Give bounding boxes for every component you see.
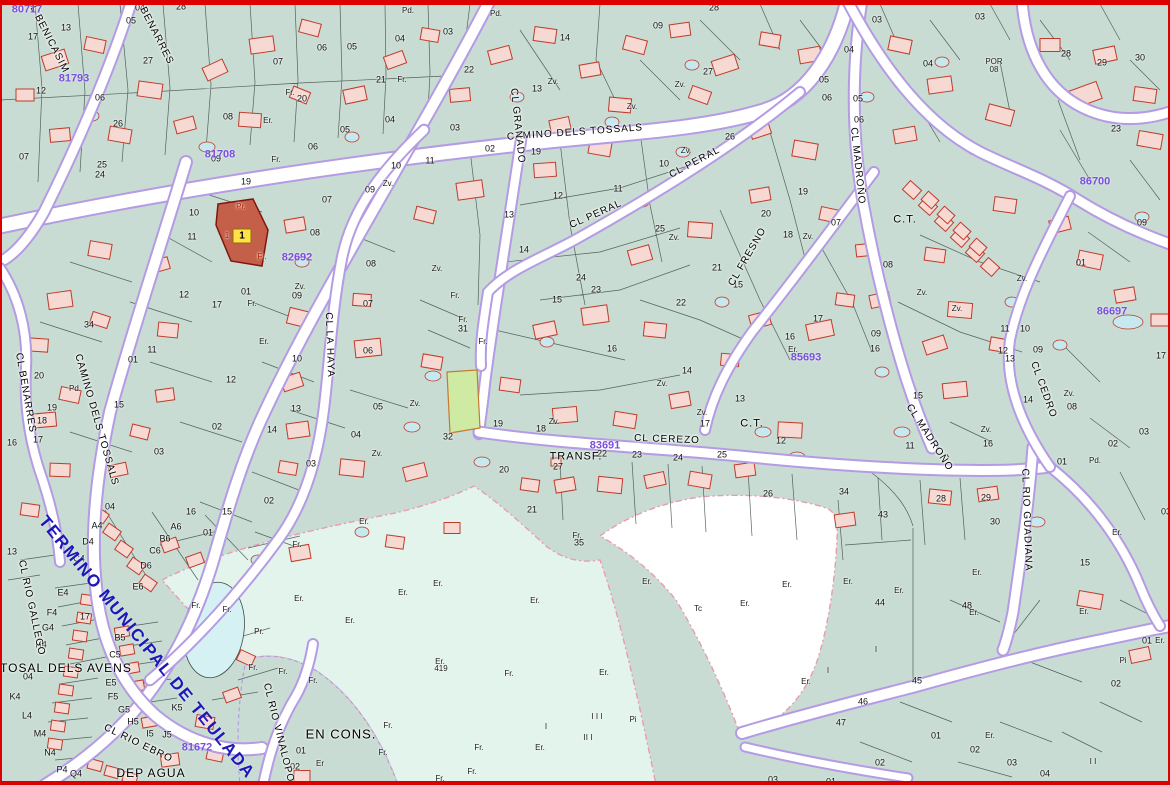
parcel-label: Pd. [1089, 457, 1101, 465]
map-frame-top [0, 0, 1170, 5]
parcel-label: 03 [306, 460, 316, 469]
parcel-label: 02 [875, 759, 885, 768]
parcel-label: 01 [931, 732, 941, 741]
parcel-label: 08 [990, 66, 999, 74]
parcel-label: 34 [84, 321, 94, 330]
parcel-label: 17 [1156, 352, 1166, 361]
parcel-label: 14 [682, 367, 692, 376]
parcel-label: 03 [443, 28, 453, 37]
parcel-label: 32 [443, 433, 453, 442]
parcel-label: Pr. [236, 203, 246, 211]
parcel-label: 11 [425, 157, 434, 166]
parcel-label: Fr. [278, 668, 287, 676]
parcel-label: Zv. [669, 234, 680, 242]
street-name-label: CL RIO GUADIANA [1019, 468, 1033, 571]
parcel-label: 02 [1111, 680, 1121, 689]
parcel-label: Er. [530, 597, 540, 605]
parcel-label: Zv. [697, 409, 708, 417]
parcel-label: M4 [34, 730, 47, 739]
parcel-label: Fr. [292, 541, 301, 549]
parcel-label: Er. [294, 595, 304, 603]
parcel-label: 01 [203, 529, 213, 538]
parcel-label: 24 [576, 274, 586, 283]
parcel-label: Er. [782, 581, 792, 589]
parcel-label: 08 [223, 113, 233, 122]
parcel-label: 09 [292, 292, 302, 301]
parcel-label: 19 [241, 178, 251, 187]
parcel-label: D6 [140, 562, 152, 571]
parcel-label: 43 [878, 511, 888, 520]
parcel-label: C5 [109, 651, 121, 660]
parcel-label: 23 [632, 451, 642, 460]
parcel-label: 12 [36, 87, 46, 96]
parcel-label: 06 [317, 44, 327, 53]
parcel-label: 01 [296, 747, 306, 756]
parcel-label: 08 [366, 260, 376, 269]
parcel-label: Er. [398, 589, 408, 597]
parcel-label: B5 [114, 634, 125, 643]
parcel-label: N4 [44, 749, 56, 758]
parcel-label: Pi [629, 716, 636, 724]
parcel-label: 06 [363, 347, 373, 356]
parcel-label: 01 [1076, 259, 1086, 268]
parcel-label: Zv. [627, 103, 638, 111]
parcel-label: L4 [22, 712, 32, 721]
parcel-label: 16 [785, 333, 795, 342]
parcel-label: 18 [783, 231, 793, 240]
parcel-label: 22 [676, 299, 686, 308]
parcel-label: 01 [1057, 458, 1067, 467]
parcel-label: 26 [725, 133, 735, 142]
parcel-label: 13 [291, 405, 301, 414]
parcel-label: Er. [535, 744, 545, 752]
parcel-label: 20 [34, 372, 44, 381]
parcel-label: 17 [28, 33, 38, 42]
parcel-label: 1 [225, 232, 229, 240]
parcel-label: 07 [19, 153, 29, 162]
parcel-label: Fr. [474, 744, 483, 752]
parcel-label: 13 [504, 211, 514, 220]
street-name-label: CL MADROÑO [904, 403, 955, 473]
parcel-label: 02 [212, 423, 222, 432]
parcel-label: 28 [1061, 50, 1071, 59]
area-label: EN CONS. [306, 728, 377, 741]
parcel-label: 35 [574, 539, 584, 548]
parcel-label: 09 [871, 330, 881, 339]
parcel-label: Fr. [191, 602, 200, 610]
parcel-label: Zv. [1064, 390, 1075, 398]
parcel-label: 03 [1007, 759, 1017, 768]
parcel-label: 03 [1139, 428, 1149, 437]
parcel-label: 20 [761, 210, 771, 219]
parcel-label: 02 [1108, 440, 1118, 449]
parcel-label: Zv. [372, 450, 383, 458]
street-name-label: CAMINO DELS TOSSALS [507, 123, 644, 142]
street-name-label: CL RIO GALLEGO [16, 559, 46, 656]
parcel-label: 24 [95, 171, 105, 180]
parcel-label: Fr. [450, 292, 459, 300]
parcel-label: 12 [553, 192, 563, 201]
parcel-label: 19 [531, 148, 541, 157]
parcel-label: 07 [831, 219, 841, 228]
parcel-label: 15 [1080, 559, 1090, 568]
parcel-label: 14 [519, 246, 529, 255]
parcel-label: 29 [1097, 59, 1107, 68]
parcel-label: 04 [105, 503, 115, 512]
parcel-label: 15 [114, 401, 124, 410]
parcel-label: Zv. [657, 380, 668, 388]
parcel-label: 11 [613, 185, 622, 194]
parcel-label: Er. [642, 578, 652, 586]
parcel-label: Er. [345, 617, 355, 625]
parcel-label: 18 [37, 417, 47, 426]
parcel-label: Er. [740, 600, 750, 608]
parcel-label: Er. [1079, 608, 1089, 616]
block-code-label: 86697 [1097, 307, 1128, 318]
parcel-label: 14 [560, 34, 570, 43]
parcel-label: 17 [80, 613, 90, 622]
street-name-label: CL PERAL [668, 145, 722, 180]
parcel-label: Er. [359, 518, 369, 526]
parcel-label: 20 [499, 466, 509, 475]
parcel-label: 03 [872, 16, 882, 25]
parcel-label: Er. [1112, 529, 1122, 537]
parcel-label: Er. [433, 580, 443, 588]
parcel-label: 06 [854, 116, 864, 125]
parcel-label: 09 [1033, 346, 1043, 355]
parcel-label: 12 [179, 291, 189, 300]
parcel-label: 11 [1000, 325, 1009, 334]
parcel-label: 21 [376, 76, 386, 85]
parcel-label: Fr. [467, 768, 476, 776]
parcel-label: F4 [47, 609, 58, 618]
parcel-label: 15 [552, 296, 562, 305]
block-code-label: 81672 [182, 743, 213, 754]
area-label: C.T. [740, 419, 764, 430]
parcel-label: Pd. [490, 10, 502, 18]
parcel-label: II I [584, 734, 593, 742]
area-label: C.T. [893, 215, 917, 226]
parcel-label: 17 [33, 436, 43, 445]
parcel-label: 07 [363, 300, 373, 309]
parcel-label: 07 [273, 58, 283, 67]
parcel-label: 16 [7, 439, 17, 448]
parcel-label: 08 [883, 261, 893, 270]
parcel-label: 10 [189, 209, 199, 218]
parcel-label: 05 [340, 126, 350, 135]
parcel-label: Fr. [383, 722, 392, 730]
parcel-label: 419 [434, 665, 447, 673]
parcel-label: 08 [310, 229, 320, 238]
area-label: DEP AGUA [116, 767, 185, 779]
parcel-label: 13 [1005, 355, 1015, 364]
parcel-label: 19 [47, 404, 57, 413]
parcel-label: Zv. [981, 426, 992, 434]
parcel-label: Q4 [70, 770, 82, 779]
street-name-label: CL PERAL [568, 199, 623, 231]
parcel-label: 01 [128, 356, 138, 365]
cadastral-map[interactable]: 1713040528120627082625240707060519Fr.20E… [0, 0, 1170, 785]
parcel-label: 05 [347, 43, 357, 52]
parcel-label: 02 [264, 497, 274, 506]
parcel-label: E6 [132, 583, 143, 592]
parcel-label: Zv. [803, 233, 814, 241]
parcel-label: 26 [763, 490, 773, 499]
parcel-label: 10 [1020, 325, 1030, 334]
parcel-label: E4 [57, 589, 68, 598]
street-name-label: CL GRANADO [508, 88, 526, 164]
parcel-label: 05 [373, 403, 383, 412]
parcel-label: Fr. [285, 89, 294, 97]
parcel-label: 11 [905, 442, 914, 451]
parcel-label: 04 [395, 35, 405, 44]
parcel-label: 05 [126, 17, 136, 26]
parcel-label: 23 [591, 286, 601, 295]
parcel-label: 17 [212, 301, 222, 310]
parcel-label: 11 [187, 233, 196, 242]
parcel-label: Fr. [248, 664, 257, 672]
parcel-label: 04 [923, 60, 933, 69]
parcel-label: 02 [485, 145, 495, 154]
parcel-label: P4 [56, 766, 67, 775]
parcel-label: 15 [222, 508, 232, 517]
parcel-label: 26 [113, 120, 123, 129]
parcel-label: 30 [1135, 54, 1145, 63]
area-label: TOSAL DELS AVENS [0, 662, 132, 674]
parcel-label: 30 [990, 518, 1000, 527]
parcel-label: 09 [1137, 219, 1147, 228]
labels-layer: 1713040528120627082625240707060519Fr.20E… [0, 0, 1170, 785]
parcel-label: I [545, 723, 547, 731]
parcel-label: 27 [703, 68, 713, 77]
parcel-label: 06 [95, 94, 105, 103]
parcel-label: 16 [870, 345, 880, 354]
parcel-label: 25 [97, 161, 107, 170]
parcel-label: J5 [162, 731, 172, 740]
parcel-label: 18 [536, 425, 546, 434]
parcel-label: 46 [858, 698, 868, 707]
parcel-label: 04 [385, 116, 395, 125]
parcel-label: Fr. [397, 76, 406, 84]
parcel-label: Fr. [247, 300, 256, 308]
parcel-label: 04 [351, 431, 361, 440]
area-label: TRANSF. [550, 452, 603, 463]
parcel-label: H5 [127, 718, 139, 727]
parcel-label: 09 [365, 186, 375, 195]
parcel-label: 21 [712, 264, 722, 273]
parcel-label: F5 [108, 693, 119, 702]
parcel-label: Er. [894, 587, 904, 595]
parcel-label: Fr. [257, 253, 266, 261]
parcel-label: 16 [186, 508, 196, 517]
street-name-label: CL FRESNO [727, 226, 769, 288]
parcel-label: 27 [143, 57, 153, 66]
parcel-label: 10 [391, 162, 401, 171]
parcel-label: 14 [267, 426, 277, 435]
parcel-label: 23 [1111, 125, 1121, 134]
street-name-label: CL RIO VINALOPO [261, 682, 295, 783]
parcel-label: Zv. [675, 81, 686, 89]
map-frame-bottom [0, 781, 1170, 785]
parcel-label: Er. [801, 678, 811, 686]
parcel-label: Er. [972, 569, 982, 577]
parcel-label: 12 [776, 437, 786, 446]
parcel-label: 13 [735, 395, 745, 404]
parcel-label: 31 [458, 325, 468, 334]
parcel-label: 04 [844, 46, 854, 55]
parcel-label: Pi [1119, 657, 1126, 665]
parcel-label: Fr. [478, 338, 487, 346]
parcel-label: I I I [591, 713, 602, 721]
parcel-label: Fr. [222, 606, 231, 614]
parcel-label: 19 [493, 420, 503, 429]
parcel-label: B6 [159, 535, 170, 544]
parcel-label: Er. [969, 609, 979, 617]
parcel-label: 11 [147, 346, 156, 355]
parcel-label: 25 [717, 451, 727, 460]
parcel-label: C6 [149, 547, 161, 556]
parcel-label: 20 [297, 95, 307, 104]
parcel-label: 21 [527, 506, 537, 515]
parcel-label: 28 [936, 495, 946, 504]
block-code-label: 81793 [59, 74, 90, 85]
parcel-label: Fr. [378, 749, 387, 757]
parcel-label: Zv. [917, 289, 928, 297]
parcel-label: 17 [813, 315, 823, 324]
parcel-label: G5 [118, 706, 130, 715]
parcel-label: 16 [607, 345, 617, 354]
parcel-label: Fr. [271, 156, 280, 164]
parcel-label: 22 [464, 66, 474, 75]
street-name-label: CAMINO DELS TOSSALS [72, 353, 119, 487]
parcel-label: Pd. [402, 7, 414, 15]
parcel-label: 44 [875, 599, 885, 608]
parcel-label: G4 [42, 624, 54, 633]
parcel-label: Er. [1155, 637, 1165, 645]
parcel-label: K4 [9, 693, 20, 702]
parcel-label: I I [1090, 758, 1097, 766]
parcel-label: 29 [981, 494, 991, 503]
parcel-label: 05 [819, 76, 829, 85]
parcel-label: 10 [659, 160, 669, 169]
parcel-label: 02 [970, 746, 980, 755]
parcel-label: 05 [853, 95, 863, 104]
street-name-label: CL CEREZO [634, 434, 700, 446]
parcel-label: 06 [308, 143, 318, 152]
block-code-label: 80717 [12, 5, 43, 16]
parcel-label: 03 [975, 13, 985, 22]
parcel-label: A6 [170, 523, 181, 532]
parcel-label: E5 [105, 679, 116, 688]
parcel-label: Zv. [432, 265, 443, 273]
parcel-label: Zv. [548, 78, 559, 86]
parcel-label: Zv. [952, 305, 963, 313]
street-name-label: CL MADROÑO [848, 127, 866, 205]
parcel-label: 06 [822, 94, 832, 103]
parcel-label: Er. [263, 117, 273, 125]
map-frame-left [0, 0, 2, 785]
parcel-label: Er. [985, 732, 995, 740]
parcel-label: Zv. [681, 147, 692, 155]
parcel-label: 07 [322, 196, 332, 205]
parcel-label: I [875, 646, 877, 654]
street-name-label: CL LA HAYA [323, 312, 335, 378]
parcel-label: Er. [599, 669, 609, 677]
parcel-label: Tc [694, 605, 702, 613]
parcel-label: 01 [1142, 637, 1152, 646]
parcel-label: 01 [241, 288, 251, 297]
parcel-label: 47 [836, 719, 846, 728]
parcel-label: 03 [450, 124, 460, 133]
parcel-label: 08 [1067, 403, 1077, 412]
street-name-label: CL CEDRO [1028, 360, 1058, 419]
parcel-label: D4 [82, 538, 94, 547]
parcel-label: Er. [843, 578, 853, 586]
parcel-label: 10 [292, 355, 302, 364]
street-name-label: CL BENARRES [13, 352, 37, 434]
parcel-label: 03 [154, 448, 164, 457]
parcel-label: 13 [532, 85, 542, 94]
parcel-label: I [827, 667, 829, 675]
parcel-label: Pr. [254, 628, 264, 636]
parcel-label: 13 [61, 24, 71, 33]
parcel-label: 34 [839, 488, 849, 497]
parcel-label: Er [316, 760, 324, 768]
parcel-label: 12 [226, 376, 236, 385]
parcel-label: Zv. [410, 400, 421, 408]
parcel-label: 17 [700, 420, 710, 429]
parcel-label: Pd. [69, 385, 81, 393]
parcel-label: 27 [553, 463, 563, 472]
parcel-label: 04 [1040, 770, 1050, 779]
parcel-label: 15 [913, 392, 923, 401]
parcel-label: Er. [259, 338, 269, 346]
parcel-label: A4 [91, 522, 102, 531]
parcel-label: 24 [673, 454, 683, 463]
parcel-label: 16 [983, 440, 993, 449]
block-code-label: 86700 [1080, 177, 1111, 188]
parcel-label: Zv. [383, 180, 394, 188]
selected-parcel-tag[interactable]: 1 [233, 229, 252, 244]
parcel-label: Fr. [504, 670, 513, 678]
parcel-label: 19 [798, 188, 808, 197]
parcel-label: Zv. [549, 418, 560, 426]
parcel-label: I5 [146, 730, 154, 739]
parcel-label: 14 [1023, 396, 1033, 405]
parcel-label: 25 [655, 225, 665, 234]
block-code-label: 82692 [282, 253, 313, 264]
block-code-label: 85693 [791, 353, 822, 364]
block-code-label: 81708 [205, 150, 236, 161]
parcel-label: Fr. [308, 677, 317, 685]
parcel-label: 09 [653, 22, 663, 31]
parcel-label: 45 [912, 677, 922, 686]
parcel-label: 13 [7, 548, 17, 557]
parcel-label: Zv. [1017, 275, 1028, 283]
